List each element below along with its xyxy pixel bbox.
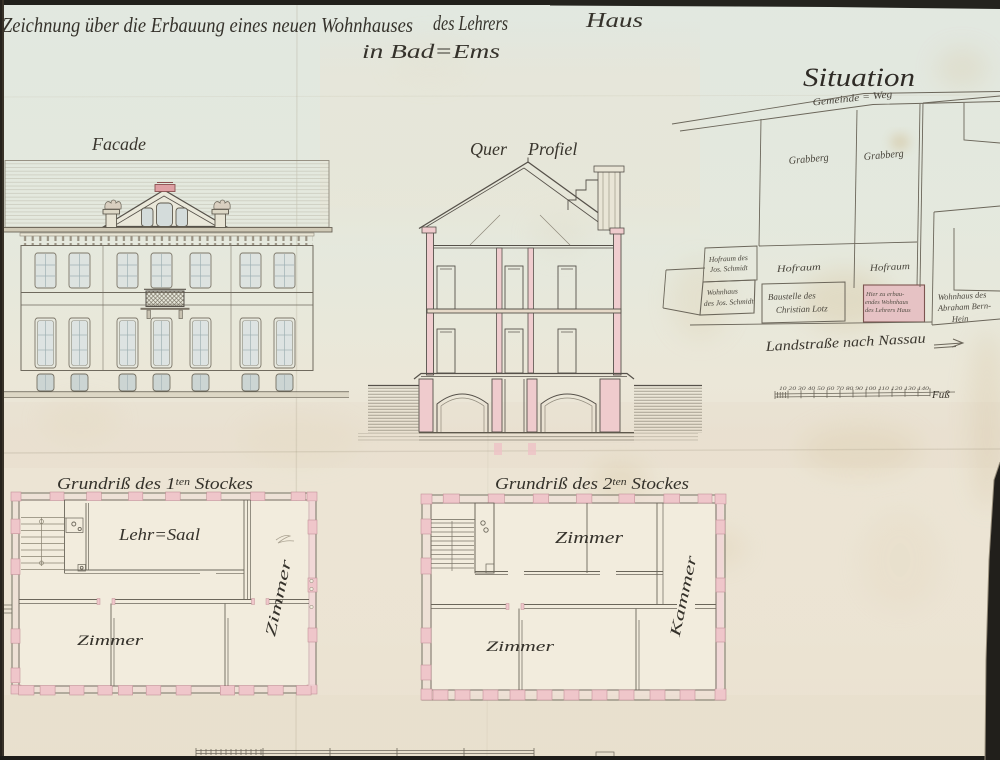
svg-text:Baustelle des: Baustelle des xyxy=(768,290,817,302)
svg-text:Haus: Haus xyxy=(585,8,643,32)
svg-text:Wohnhaus: Wohnhaus xyxy=(707,286,738,297)
svg-text:Grundriß des 2ten Stockes: Grundriß des 2ten Stockes xyxy=(495,474,689,493)
svg-text:des Lehrers: des Lehrers xyxy=(433,11,508,35)
svg-text:Zeichnung über die Erbauung ei: Zeichnung über die Erbauung eines neuen … xyxy=(2,13,413,37)
svg-text:10 20 30 40 50 60 70 80 90 100: 10 20 30 40 50 60 70 80 90 100 110 120 1… xyxy=(779,385,929,392)
svg-text:Zimmer: Zimmer xyxy=(77,633,143,649)
svg-text:in Bad=Ems: in Bad=Ems xyxy=(362,41,500,63)
svg-text:Zimmer: Zimmer xyxy=(555,528,623,547)
svg-text:Fuß: Fuß xyxy=(931,389,950,401)
svg-text:Hofraum: Hofraum xyxy=(868,261,910,274)
svg-text:Zimmer: Zimmer xyxy=(486,639,554,655)
svg-text:Lehr=Saal: Lehr=Saal xyxy=(118,525,200,544)
svg-text:Quer: Quer xyxy=(470,139,508,159)
svg-text:Christian Lotz: Christian Lotz xyxy=(776,303,829,315)
svg-text:Hier zu erbau-: Hier zu erbau- xyxy=(865,291,904,298)
svg-text:Hein: Hein xyxy=(951,313,969,324)
svg-text:Profiel: Profiel xyxy=(527,139,577,159)
svg-text:des Lehrers Haus: des Lehrers Haus xyxy=(865,307,911,314)
svg-text:Situation: Situation xyxy=(803,63,915,92)
svg-text:Facade: Facade xyxy=(91,134,146,154)
svg-text:Grundriß des 1ten Stockes: Grundriß des 1ten Stockes xyxy=(57,474,253,493)
svg-text:endes Wohnhaus: endes Wohnhaus xyxy=(865,299,909,306)
